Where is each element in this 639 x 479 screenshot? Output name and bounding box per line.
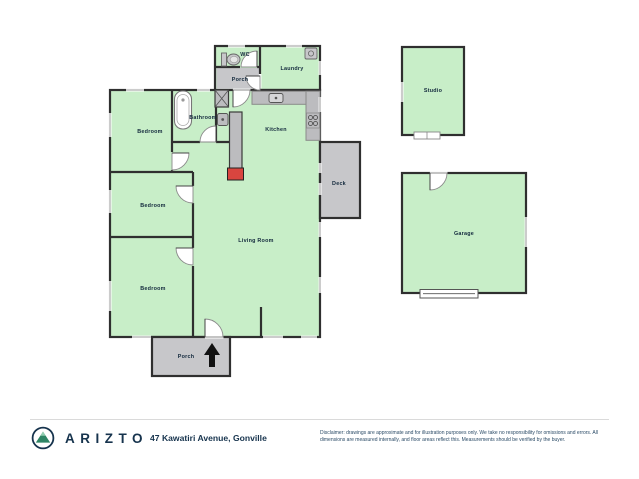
label-studio: Studio [424,88,443,94]
garage-door-icon [420,290,478,299]
footer-divider [30,419,609,420]
label-kitchen: Kitchen [265,127,287,133]
chimney [230,112,243,170]
property-address: 47 Kawatiri Avenue, Gonville [150,433,267,443]
label-porch-top: Porch [232,77,249,83]
label-bedroom-2: Bedroom [140,203,165,209]
washing-machine-icon [305,48,317,59]
toilet-icon [222,53,241,66]
label-bedroom-1: Bedroom [137,129,162,135]
stove-icon [307,113,320,128]
shower-icon [215,90,229,107]
label-bedroom-3: Bedroom [140,286,165,292]
sink-icon [218,114,229,126]
room-deck [320,142,360,218]
bathtub-icon [175,91,192,129]
label-wc: WC [240,52,249,58]
label-deck: Deck [332,181,346,187]
fireplace [228,168,244,180]
brand-name: ARIZTO [65,431,148,446]
label-porch-bottom: Porch [178,354,195,360]
brand-logo-lockup: ARIZTO [31,426,148,450]
floor-plan-page: WC Porch Laundry Bathroom Kitchen Bedroo… [0,0,639,479]
label-living-room: Living Room [238,238,273,244]
floor-plan-drawing: WC Porch Laundry Bathroom Kitchen Bedroo… [0,0,639,410]
label-laundry: Laundry [280,66,303,72]
studio-step [414,132,440,139]
arizto-logo-icon [31,426,55,450]
sink-icon [269,94,283,103]
label-bathroom: Bathroom [189,115,216,121]
disclaimer-text: Disclaimer: drawings are approximate and… [320,430,620,443]
label-garage: Garage [454,231,474,237]
footer: ARIZTO 47 Kawatiri Avenue, Gonville Disc… [0,419,639,479]
